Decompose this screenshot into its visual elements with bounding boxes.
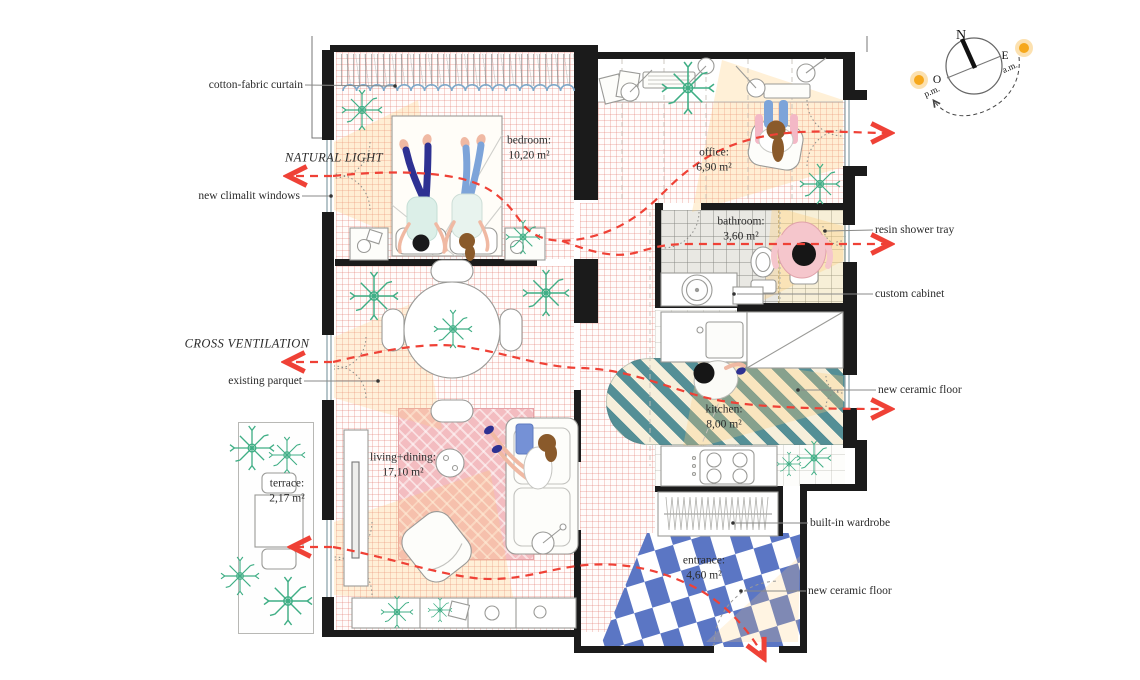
floor-plan-canvas: N E a.m. O p.m. cotton-fabric curtain NA… xyxy=(0,0,1140,680)
side-table xyxy=(436,449,464,477)
sink-cabinet xyxy=(661,273,737,306)
sideboard xyxy=(352,598,576,628)
room-label-office: office: 6,90 m² xyxy=(696,145,731,174)
annotation-shower-tray: resin shower tray xyxy=(875,224,954,237)
room-area: 8,00 m² xyxy=(706,418,741,430)
sun-west-icon xyxy=(914,75,924,85)
room-name: office: xyxy=(699,146,729,158)
plan-graphics: N E a.m. O p.m. xyxy=(0,0,1140,680)
room-label-entrance: entrance: 4,60 m² xyxy=(683,553,725,582)
room-name: bathroom: xyxy=(717,215,764,227)
room-label-bedroom: bedroom: 10,20 m² xyxy=(507,133,551,162)
annotation-cabinet: custom cabinet xyxy=(875,288,944,301)
tv-unit xyxy=(344,430,368,586)
sun-east-icon xyxy=(1019,43,1029,53)
annotation-cross-ventilation: CROSS VENTILATION xyxy=(185,337,310,352)
compass-east-label: E xyxy=(1001,50,1008,62)
room-name: living+dining: xyxy=(370,451,436,463)
nightstand-left xyxy=(350,228,388,260)
room-name: kitchen: xyxy=(705,403,742,415)
room-area: 2,17 m² xyxy=(269,492,304,504)
annotation-parquet: existing parquet xyxy=(228,375,302,388)
annotation-natural-light: NATURAL LIGHT xyxy=(285,151,383,166)
compass-needle xyxy=(962,39,975,68)
room-label-living: living+dining: 17,10 m² xyxy=(370,450,436,479)
room-area: 17,10 m² xyxy=(382,466,423,478)
room-name: entrance: xyxy=(683,554,725,566)
wardrobe xyxy=(658,492,778,536)
annotation-wardrobe: built-in wardrobe xyxy=(810,517,890,530)
annotation-ceramic-entrance: new ceramic floor xyxy=(808,585,892,598)
washing-unit xyxy=(733,287,763,304)
room-area: 6,90 m² xyxy=(696,161,731,173)
room-area: 4,60 m² xyxy=(686,569,721,581)
room-name: bedroom: xyxy=(507,134,551,146)
room-label-bathroom: bathroom: 3,60 m² xyxy=(717,214,764,243)
room-label-kitchen: kitchen: 8,00 m² xyxy=(705,402,742,431)
room-label-terrace: terrace: 2,17 m² xyxy=(269,476,304,505)
nightstand-right xyxy=(505,228,545,260)
annotation-windows: new climalit windows xyxy=(198,190,300,203)
room-area: 10,20 m² xyxy=(508,149,549,161)
compass-icon: N E a.m. O p.m. xyxy=(910,28,1033,116)
annotation-curtain: cotton-fabric curtain xyxy=(209,79,303,92)
stove xyxy=(693,450,755,484)
room-area: 3,60 m² xyxy=(723,230,758,242)
room-name: terrace: xyxy=(270,477,304,489)
annotation-ceramic-kitchen: new ceramic floor xyxy=(878,384,962,397)
compass-north-label: N xyxy=(956,28,966,43)
